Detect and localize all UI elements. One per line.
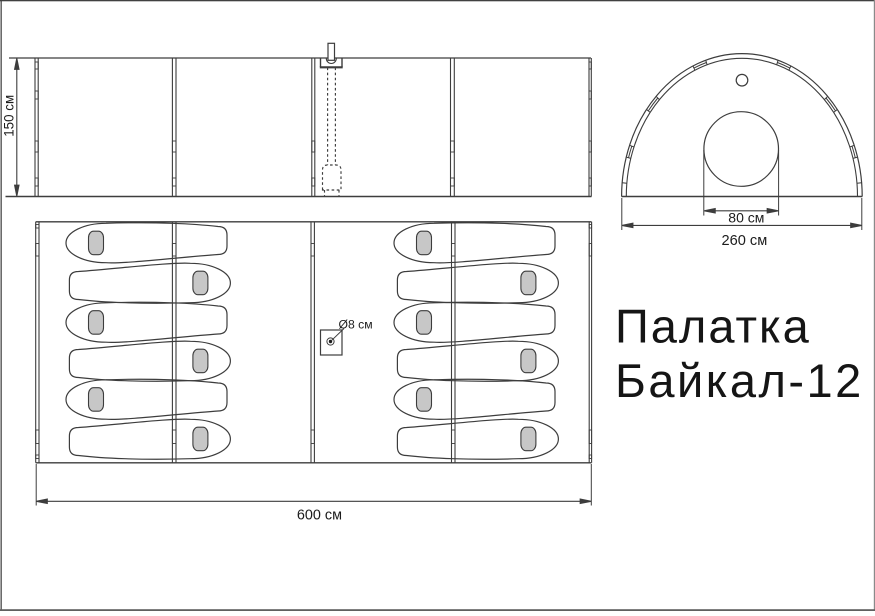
svg-text:Палатка: Палатка: [615, 300, 811, 353]
svg-text:150 см: 150 см: [2, 95, 17, 137]
svg-text:600 см: 600 см: [297, 507, 342, 523]
svg-text:80 см: 80 см: [728, 210, 764, 226]
svg-text:260 см: 260 см: [722, 233, 768, 249]
svg-text:Байкал-12: Байкал-12: [615, 354, 864, 407]
svg-text:Ø8 см: Ø8 см: [339, 317, 373, 331]
